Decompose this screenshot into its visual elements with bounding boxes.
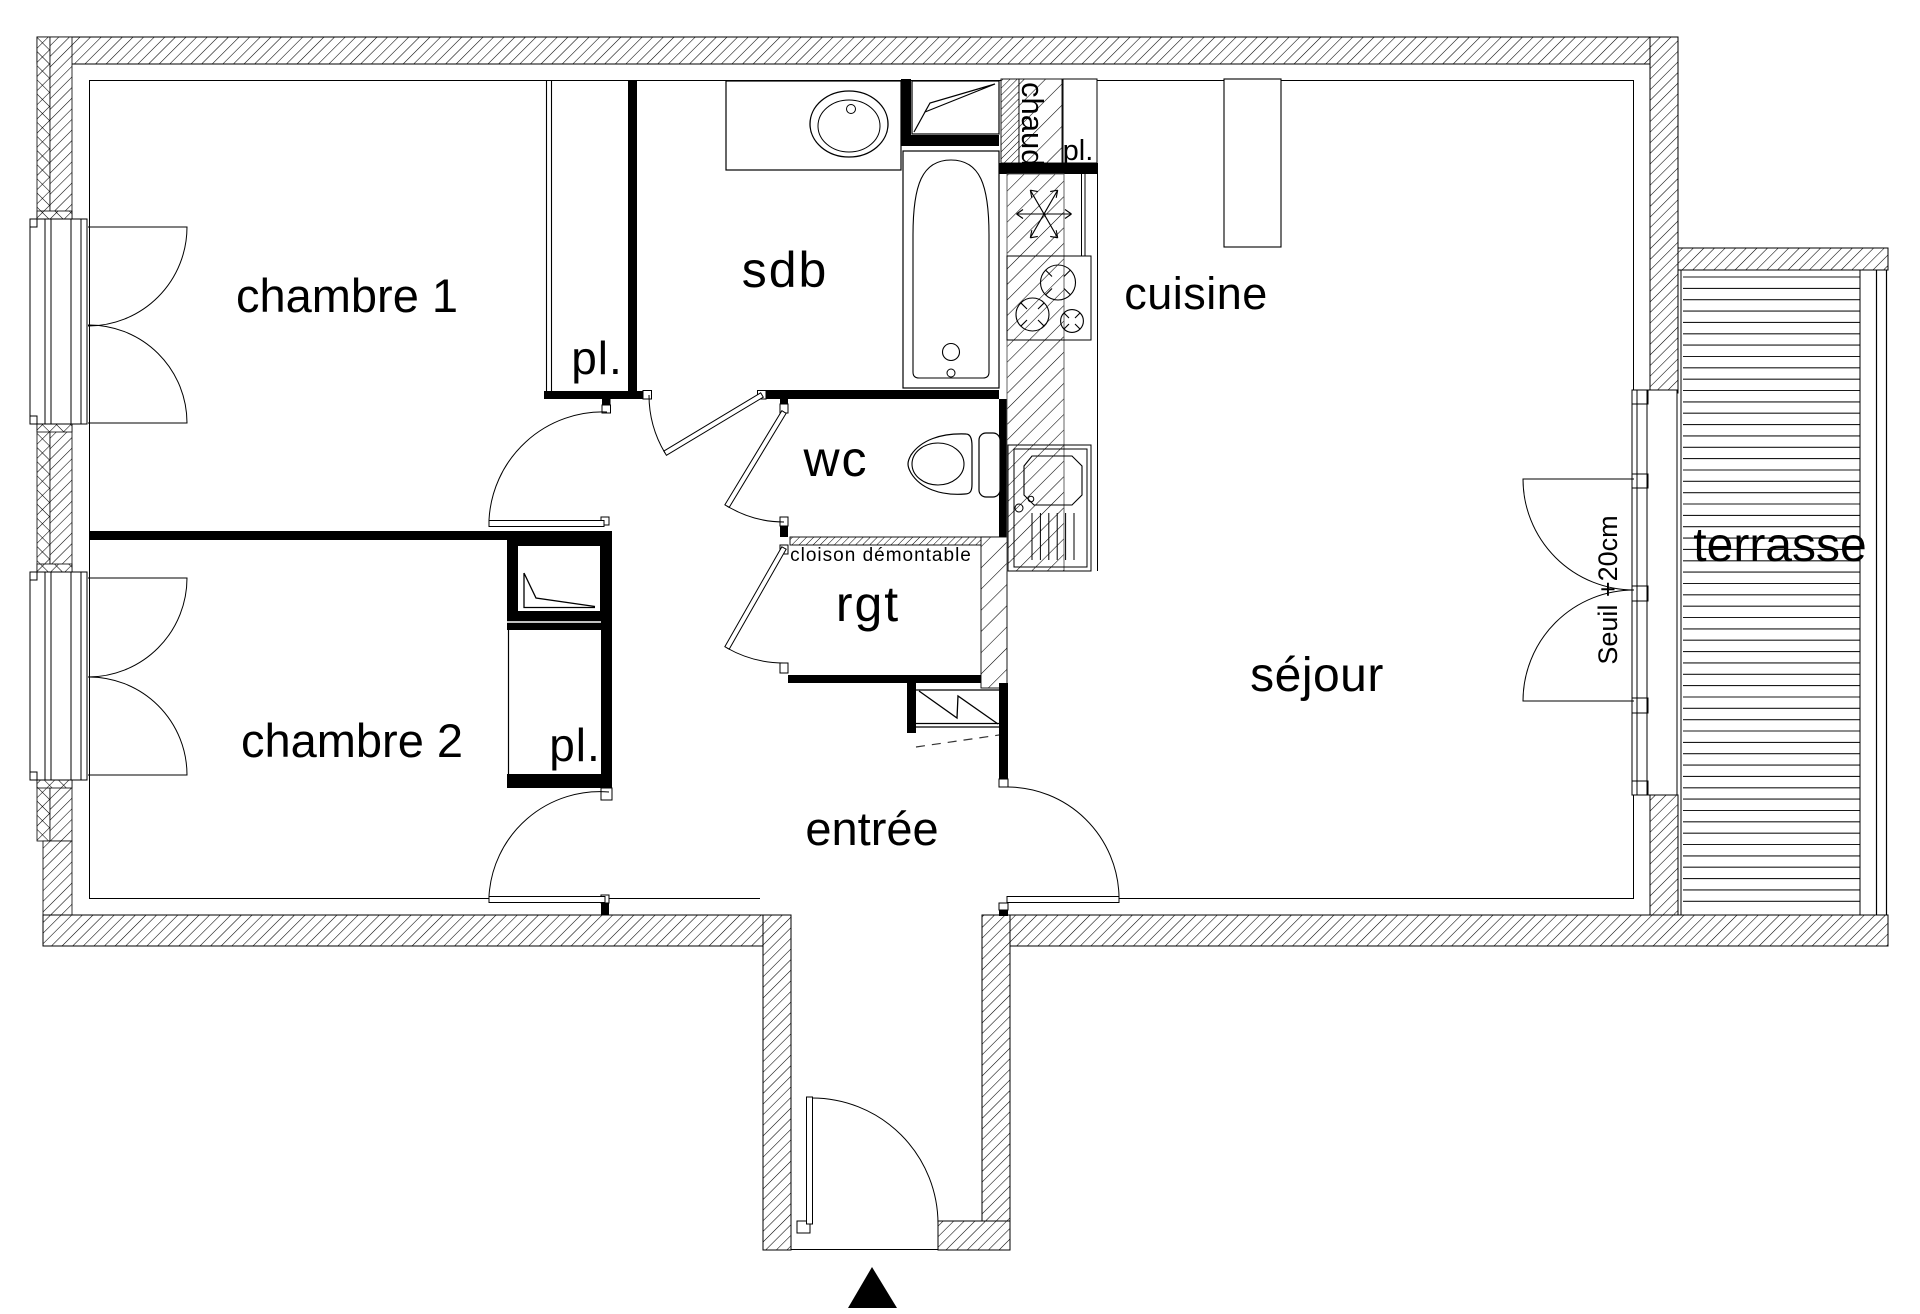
svg-text:chaud: chaud bbox=[1015, 82, 1050, 166]
svg-text:pl.: pl. bbox=[549, 719, 601, 771]
svg-text:wc: wc bbox=[802, 431, 868, 487]
svg-text:pl.: pl. bbox=[571, 332, 623, 384]
svg-text:rgt: rgt bbox=[836, 576, 900, 632]
svg-text:pl.: pl. bbox=[1063, 135, 1094, 167]
svg-text:terrasse: terrasse bbox=[1693, 519, 1866, 572]
svg-text:séjour: séjour bbox=[1250, 649, 1384, 702]
svg-text:sdb: sdb bbox=[742, 242, 829, 298]
svg-text:chambre 2: chambre 2 bbox=[241, 714, 463, 767]
svg-text:chambre 1: chambre 1 bbox=[236, 269, 458, 322]
svg-text:Seuil +20cm: Seuil +20cm bbox=[1593, 515, 1623, 664]
svg-text:cloison démontable: cloison démontable bbox=[790, 545, 972, 566]
svg-text:entrée: entrée bbox=[805, 802, 938, 855]
svg-text:cuisine: cuisine bbox=[1124, 268, 1268, 319]
